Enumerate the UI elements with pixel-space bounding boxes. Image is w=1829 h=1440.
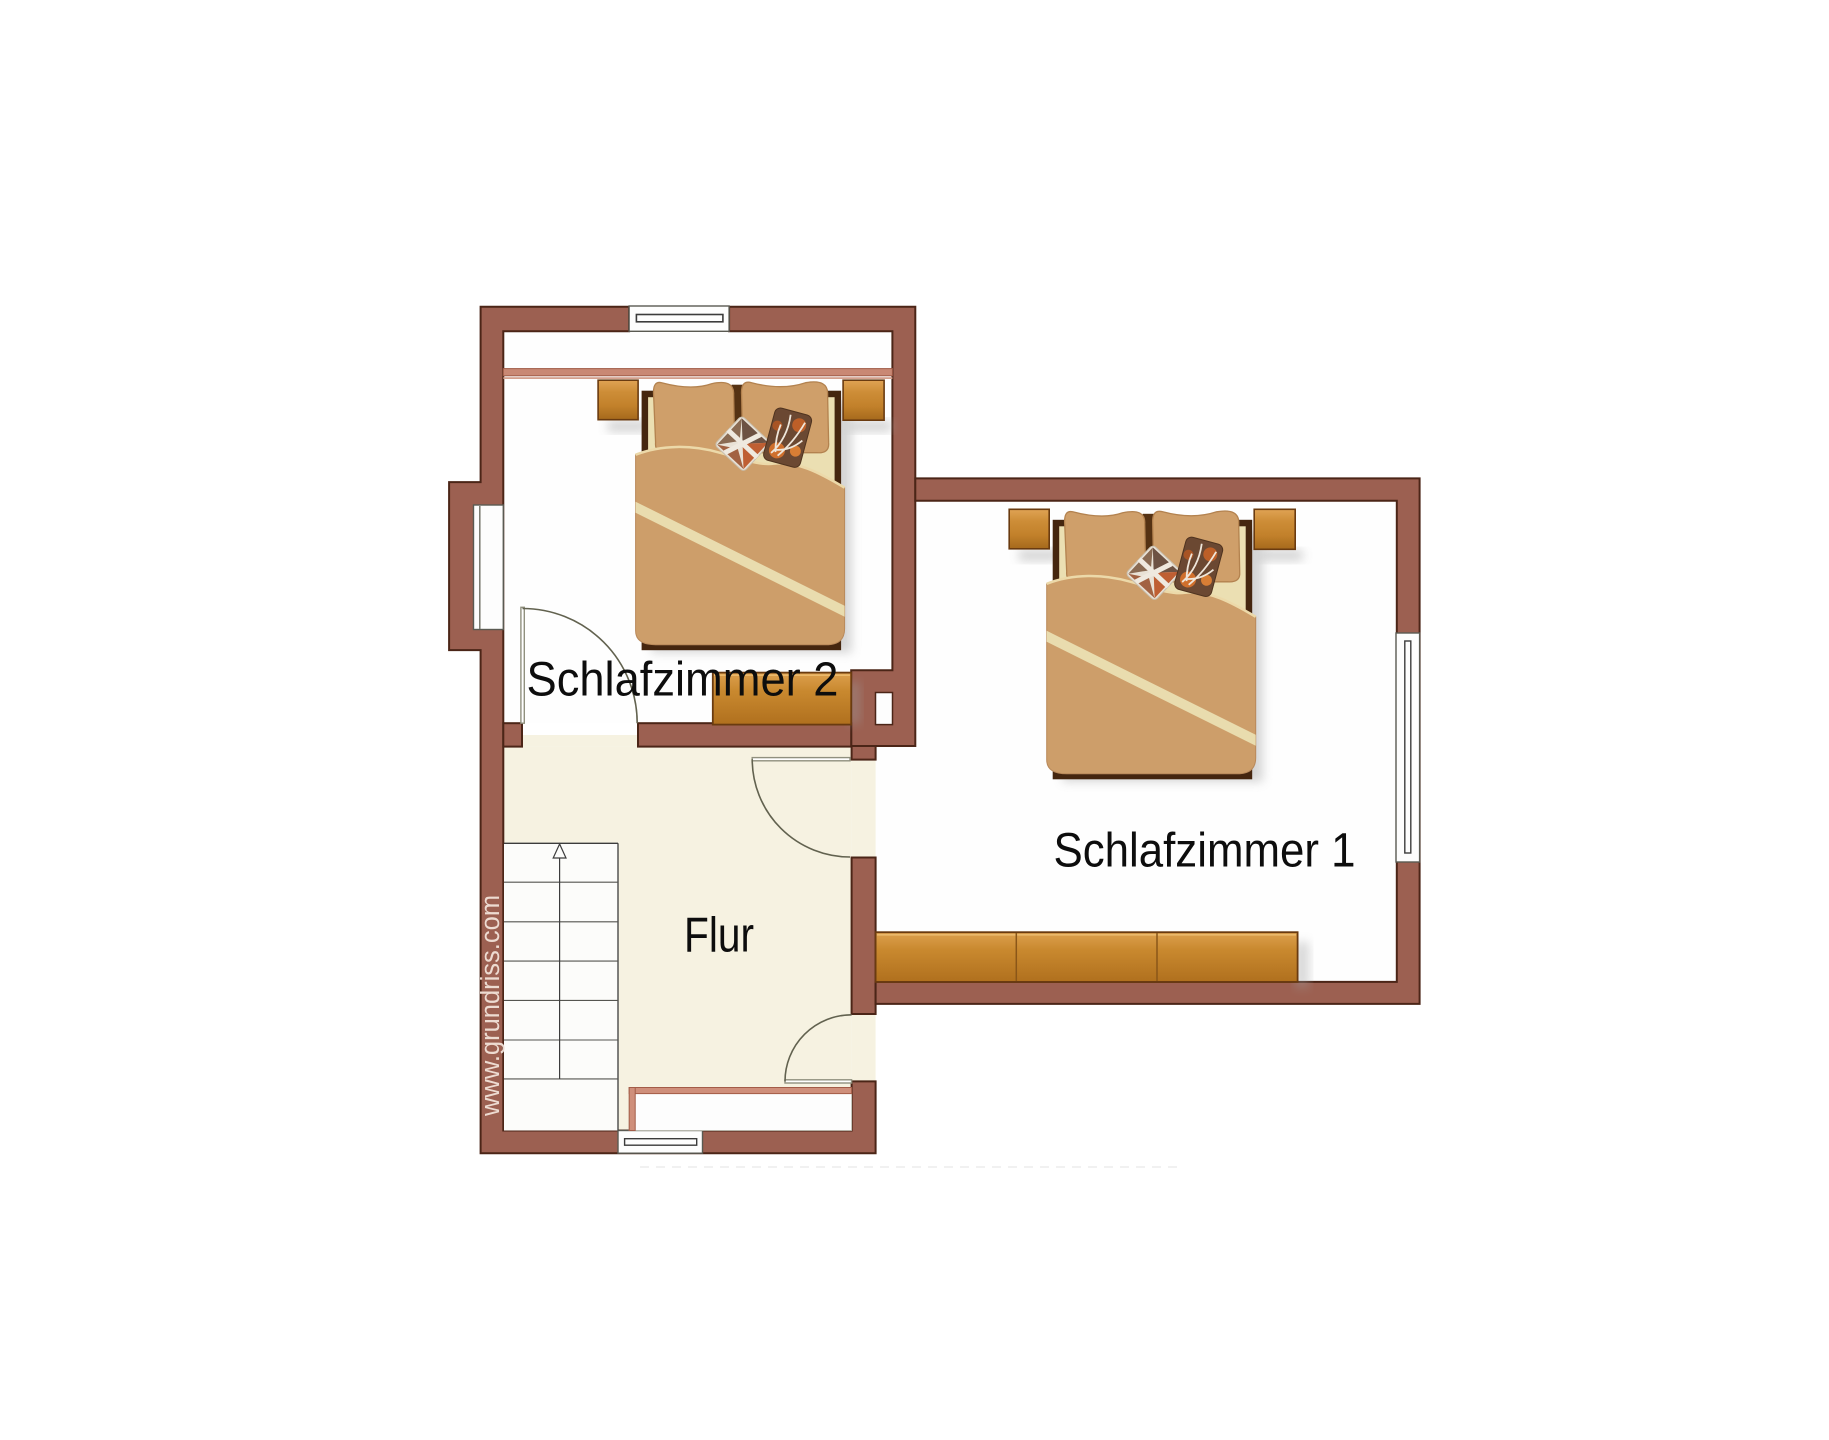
svg-text:www.grundriss.com: www.grundriss.com [477, 895, 505, 1117]
svg-text:Flur: Flur [684, 909, 754, 963]
svg-text:Schlafzimmer 1: Schlafzimmer 1 [1054, 823, 1356, 877]
svg-text:Schlafzimmer 2: Schlafzimmer 2 [527, 653, 839, 707]
